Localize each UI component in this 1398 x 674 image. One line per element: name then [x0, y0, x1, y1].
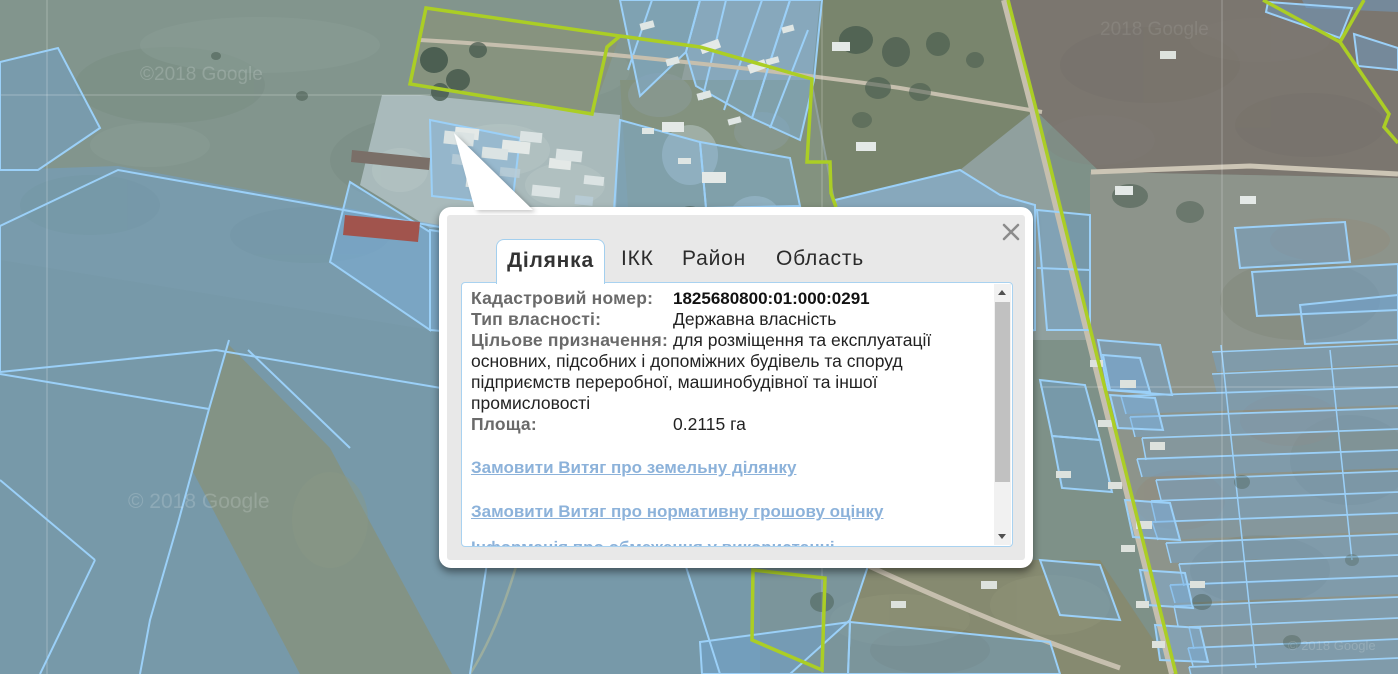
svg-text:2018 Google: 2018 Google — [1100, 19, 1209, 40]
svg-text:©2018 Google: ©2018 Google — [140, 64, 263, 85]
svg-text:© 2018 Google: © 2018 Google — [1288, 638, 1376, 653]
svg-text:© 2018 Google: © 2018 Google — [128, 490, 270, 513]
